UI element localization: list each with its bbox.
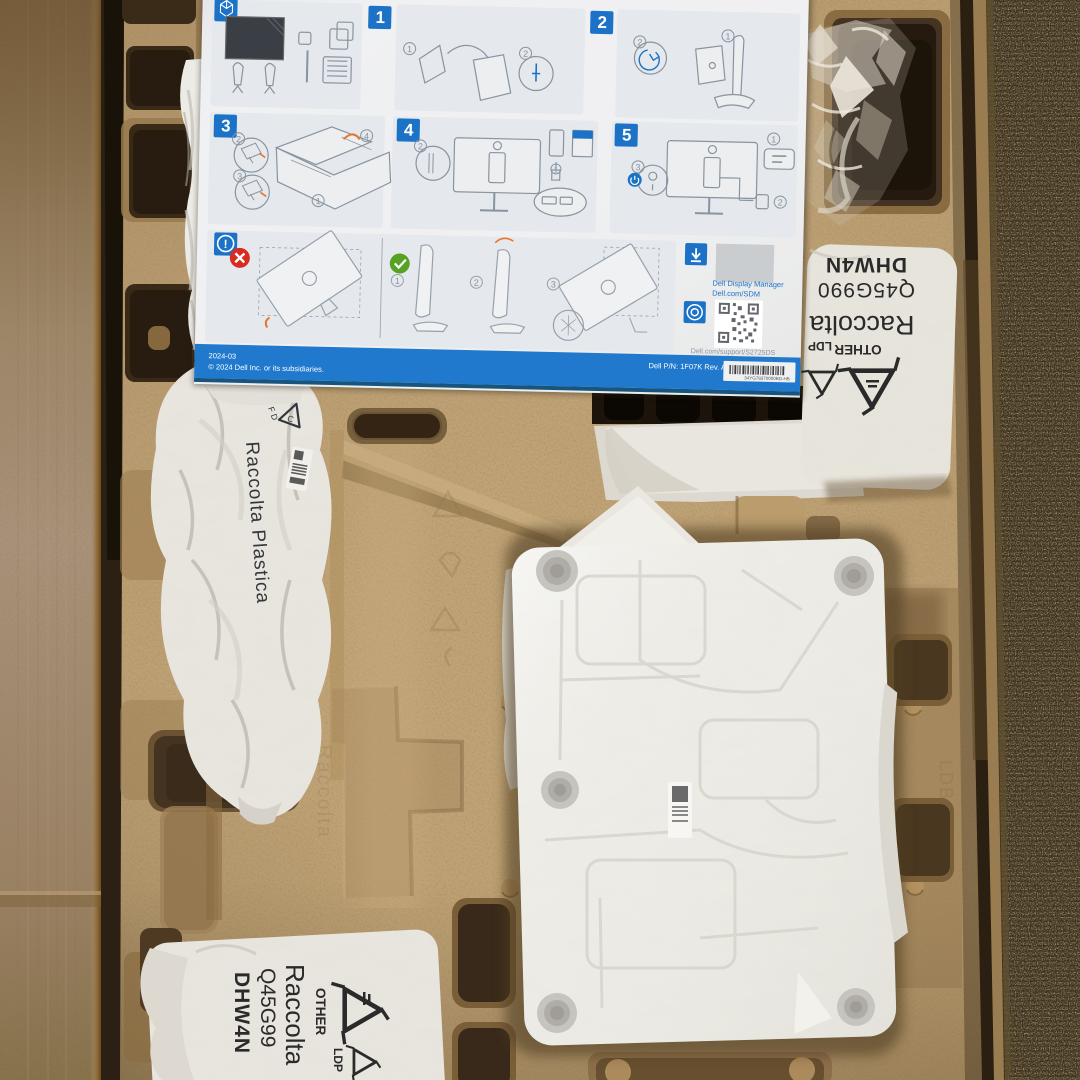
svg-text:LDP: LDP — [331, 1048, 345, 1072]
svg-text:2: 2 — [778, 198, 783, 208]
svg-text:34YG78370000BD-HB: 34YG78370000BD-HB — [744, 375, 790, 381]
svg-text:2: 2 — [474, 278, 479, 288]
svg-text:3: 3 — [635, 162, 640, 172]
svg-text:5: 5 — [622, 126, 632, 145]
svg-text:OTHER: OTHER — [834, 342, 882, 357]
svg-text:4: 4 — [364, 131, 369, 141]
svg-text:Dell.com/SDM: Dell.com/SDM — [712, 289, 760, 299]
svg-text:2024-03: 2024-03 — [209, 351, 237, 361]
svg-text:LDP: LDP — [808, 339, 832, 353]
svg-text:2: 2 — [418, 141, 423, 151]
svg-text:2: 2 — [597, 13, 607, 32]
svg-text:1: 1 — [407, 44, 412, 54]
svg-text:Q45G99: Q45G99 — [256, 968, 279, 1047]
svg-text:3: 3 — [221, 116, 231, 135]
svg-text:1: 1 — [375, 8, 385, 27]
svg-text:Raccolta: Raccolta — [280, 964, 310, 1066]
svg-text:Raccolta: Raccolta — [808, 310, 914, 340]
svg-text:DHW4N: DHW4N — [825, 253, 907, 276]
svg-text:1: 1 — [554, 165, 559, 174]
svg-text:2: 2 — [523, 49, 528, 59]
svg-text:3: 3 — [551, 279, 556, 289]
svg-text:2: 2 — [236, 134, 241, 144]
svg-text:1: 1 — [316, 196, 321, 206]
svg-text:4: 4 — [404, 121, 414, 140]
svg-text:2: 2 — [637, 37, 642, 47]
svg-text:1: 1 — [771, 134, 776, 144]
svg-text:!: ! — [223, 237, 227, 251]
svg-text:DHW4N: DHW4N — [230, 972, 253, 1054]
svg-text:Q45G990: Q45G990 — [817, 278, 915, 301]
svg-text:1: 1 — [725, 31, 730, 41]
svg-text:3: 3 — [237, 171, 242, 181]
svg-text:Dell Display Manager: Dell Display Manager — [712, 279, 784, 290]
svg-text:1: 1 — [395, 276, 400, 286]
svg-text:OTHER: OTHER — [313, 988, 328, 1036]
